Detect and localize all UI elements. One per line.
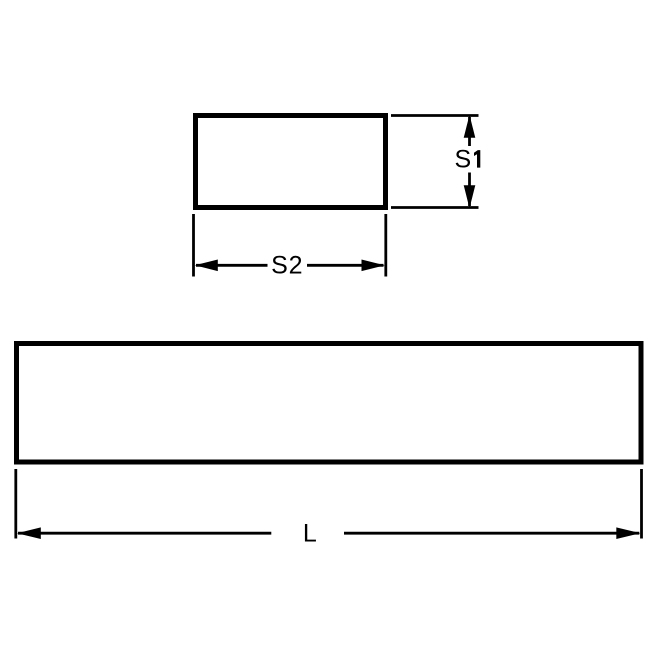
svg-text:S2: S2	[271, 252, 303, 280]
svg-text:L: L	[303, 519, 317, 547]
svg-text:S: S	[454, 146, 471, 174]
